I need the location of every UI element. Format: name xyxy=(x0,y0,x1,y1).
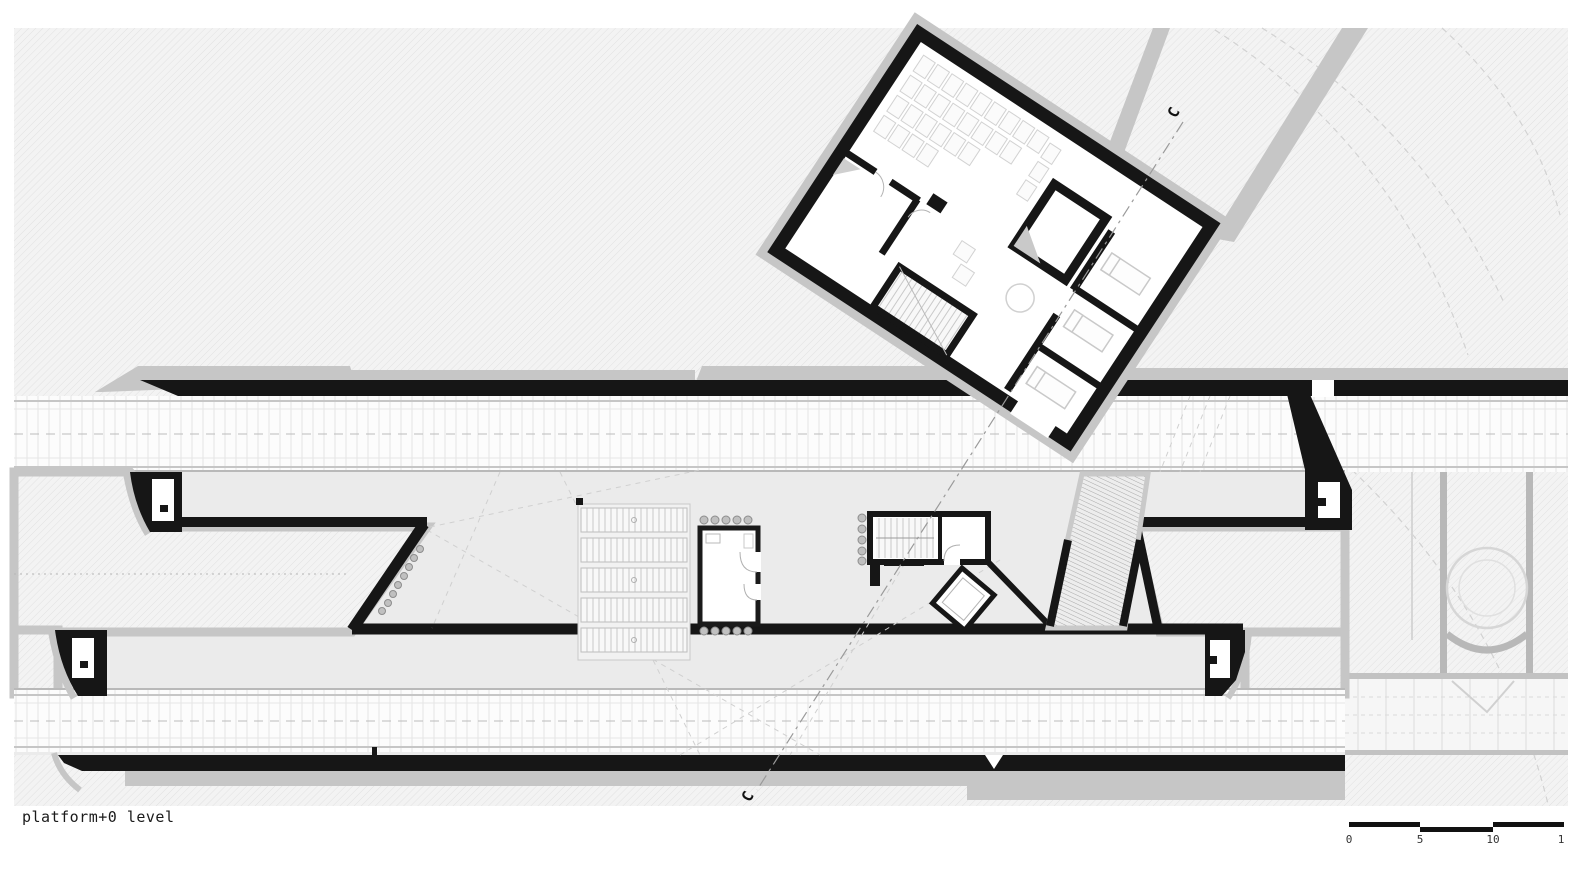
earth-wedge-right-low xyxy=(1245,632,1345,694)
track-portal-gap xyxy=(1312,380,1334,397)
station-south-wall xyxy=(58,755,1345,771)
scale-segment xyxy=(1493,822,1564,827)
floor-plan-sheet: C C 0 5 10 1 platform+0 level xyxy=(0,0,1582,872)
rail-line xyxy=(14,400,1568,402)
floor-plan-drawing: C C 0 5 10 1 platform+0 level xyxy=(0,0,1582,872)
lower-track xyxy=(14,688,1345,752)
stair-bank xyxy=(576,498,690,660)
north-boundary xyxy=(95,366,1568,398)
scale-segment xyxy=(1420,827,1493,832)
rail-line xyxy=(14,746,1345,748)
earth-wedge-right xyxy=(1136,527,1345,632)
scale-label-10: 10 xyxy=(1486,833,1499,846)
rail-line xyxy=(14,694,1345,696)
kiosk xyxy=(700,516,761,635)
scale-segment xyxy=(1349,822,1420,827)
scale-label-0: 0 xyxy=(1346,833,1353,846)
station-north-wall xyxy=(140,380,1568,396)
scale-label-5: 5 xyxy=(1417,833,1424,846)
plan-title: platform+0 level xyxy=(22,808,175,826)
corridor-wall-left xyxy=(1440,462,1447,678)
scale-label-15: 1 xyxy=(1558,833,1565,846)
corridor-wall-right xyxy=(1526,462,1533,678)
